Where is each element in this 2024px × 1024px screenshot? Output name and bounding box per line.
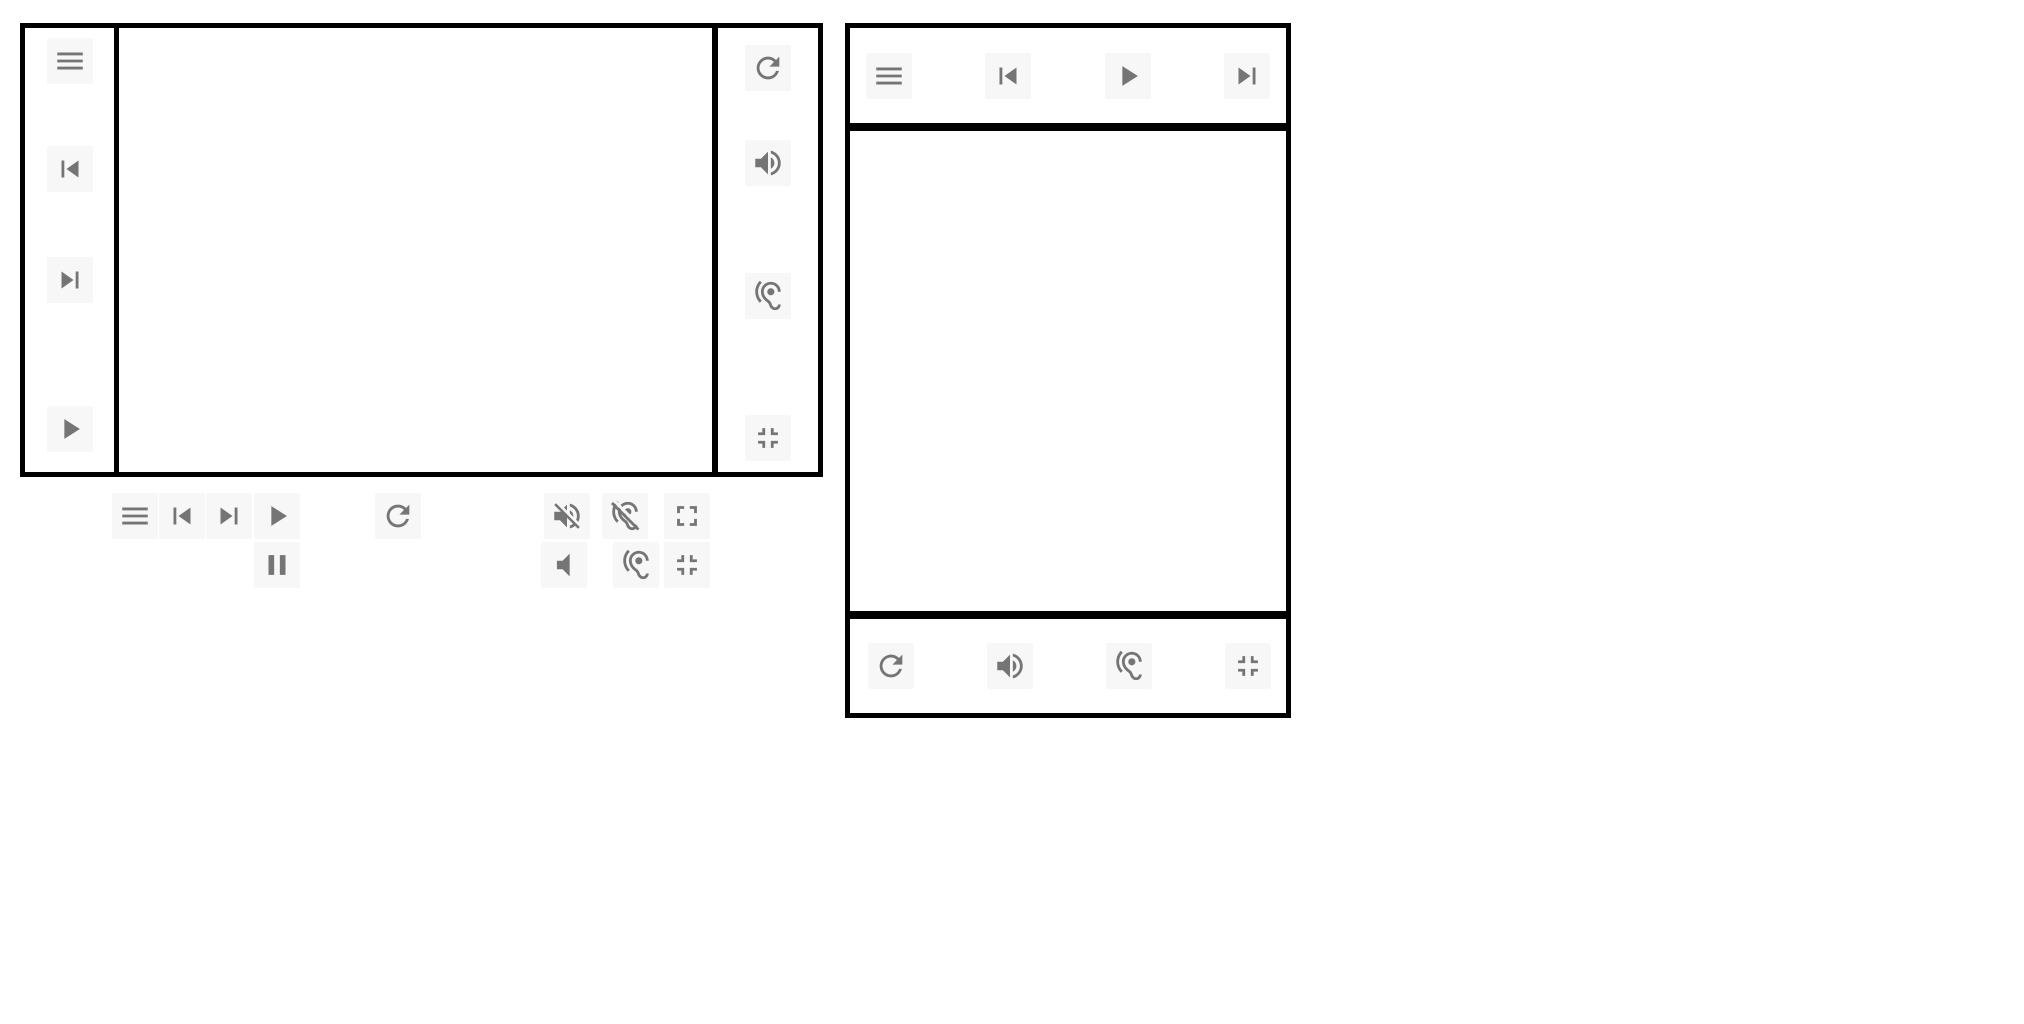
volume-off-icon bbox=[550, 499, 584, 533]
primary-player-panel bbox=[20, 23, 823, 477]
fullscreen-exit-button[interactable] bbox=[1225, 643, 1271, 689]
refresh-icon bbox=[874, 649, 908, 683]
hearing-icon bbox=[751, 279, 785, 313]
menu-icon bbox=[872, 59, 906, 93]
hearing-button[interactable] bbox=[613, 542, 659, 588]
right-control-rail bbox=[712, 28, 818, 472]
play-button[interactable] bbox=[1105, 53, 1151, 99]
skip-previous-icon bbox=[991, 59, 1025, 93]
fullscreen-exit-icon bbox=[1231, 649, 1265, 683]
play-icon bbox=[53, 412, 87, 446]
volume-up-icon bbox=[751, 146, 785, 180]
menu-button[interactable] bbox=[112, 493, 158, 539]
skip-previous-button[interactable] bbox=[159, 493, 205, 539]
skip-previous-button[interactable] bbox=[47, 146, 93, 192]
menu-button[interactable] bbox=[47, 38, 93, 84]
play-icon bbox=[1111, 59, 1145, 93]
fullscreen-exit-icon bbox=[751, 421, 785, 455]
skip-previous-icon bbox=[53, 152, 87, 186]
left-nav-rail bbox=[25, 28, 119, 472]
hearing-icon bbox=[619, 548, 653, 582]
skip-next-button[interactable] bbox=[206, 493, 252, 539]
skip-next-button[interactable] bbox=[47, 257, 93, 303]
fullscreen-exit-button[interactable] bbox=[664, 542, 710, 588]
volume-up-button[interactable] bbox=[745, 140, 791, 186]
volume-up-icon bbox=[993, 649, 1027, 683]
skip-next-button[interactable] bbox=[1224, 53, 1270, 99]
refresh-icon bbox=[751, 51, 785, 85]
menu-icon bbox=[53, 44, 87, 78]
play-button[interactable] bbox=[254, 493, 300, 539]
refresh-button[interactable] bbox=[868, 643, 914, 689]
play-button[interactable] bbox=[47, 406, 93, 452]
fullscreen-exit-button[interactable] bbox=[745, 415, 791, 461]
player-viewport bbox=[850, 131, 1286, 611]
fullscreen-exit-icon bbox=[670, 548, 704, 582]
pause-button[interactable] bbox=[254, 542, 300, 588]
top-control-bar bbox=[850, 28, 1286, 131]
refresh-icon bbox=[381, 499, 415, 533]
hearing-button[interactable] bbox=[745, 273, 791, 319]
refresh-button[interactable] bbox=[745, 45, 791, 91]
volume-mute-icon bbox=[547, 548, 581, 582]
menu-icon bbox=[118, 499, 152, 533]
fullscreen-icon bbox=[670, 499, 704, 533]
player-viewport bbox=[119, 28, 712, 472]
pause-icon bbox=[260, 548, 294, 582]
skip-previous-button[interactable] bbox=[985, 53, 1031, 99]
skip-previous-icon bbox=[165, 499, 199, 533]
play-icon bbox=[260, 499, 294, 533]
menu-button[interactable] bbox=[866, 53, 912, 99]
screenshot-canvas bbox=[0, 0, 2024, 1024]
detached-toolbar bbox=[0, 493, 840, 603]
skip-next-icon bbox=[53, 263, 87, 297]
skip-next-icon bbox=[1230, 59, 1264, 93]
bottom-control-bar bbox=[850, 611, 1286, 713]
hearing-disabled-icon bbox=[608, 499, 642, 533]
skip-next-icon bbox=[212, 499, 246, 533]
volume-off-button[interactable] bbox=[544, 493, 590, 539]
volume-up-button[interactable] bbox=[987, 643, 1033, 689]
secondary-player-panel bbox=[845, 23, 1291, 718]
hearing-button[interactable] bbox=[1106, 643, 1152, 689]
fullscreen-button[interactable] bbox=[664, 493, 710, 539]
hearing-disabled-button[interactable] bbox=[602, 493, 648, 539]
hearing-icon bbox=[1112, 649, 1146, 683]
volume-mute-button[interactable] bbox=[541, 542, 587, 588]
refresh-button[interactable] bbox=[375, 493, 421, 539]
